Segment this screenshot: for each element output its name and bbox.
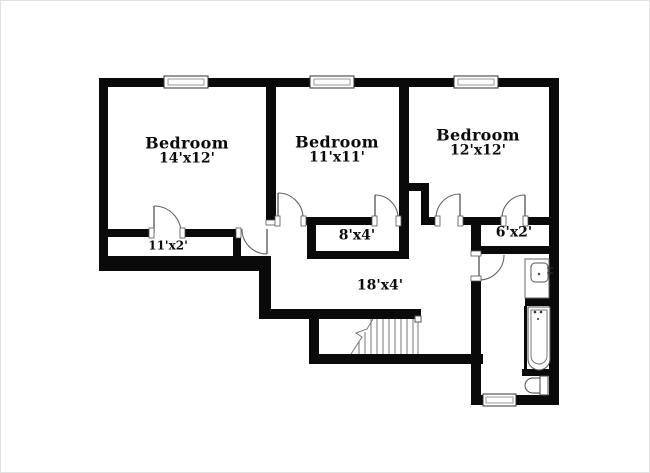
bedroom1-dims: 14'x12' (159, 152, 215, 167)
wall-bed1-bottom-a (99, 229, 154, 237)
floorplan-canvas: Bedroom 14'x12' Bedroom 11'x11' Bedroom … (0, 0, 650, 473)
wall-hall-bottom (259, 309, 421, 319)
wall-closet3-bottom (471, 246, 559, 254)
staircase (351, 316, 421, 354)
door-icon (375, 195, 398, 218)
wall-corridor-left (471, 279, 481, 405)
bathtub (528, 307, 550, 370)
hallway-dims: 18'x4' (357, 279, 403, 294)
wall-left (99, 78, 108, 271)
wall-tub-left (524, 306, 527, 369)
wall-tub-bottom-stub (522, 369, 549, 376)
closet1-dims: 11'x2' (148, 240, 188, 253)
door-icon (154, 206, 181, 233)
closet2-dims: 8'x4' (339, 229, 375, 244)
door-icon (242, 229, 267, 254)
stair-break-line (351, 319, 373, 354)
window-icon (310, 76, 354, 88)
wall-vanity-stub (525, 298, 549, 306)
window-icon (454, 76, 498, 88)
wall-bed1-bottom-b (182, 229, 241, 237)
toilet (525, 376, 548, 395)
window-icon (164, 76, 208, 88)
floorplan-drawing (1, 1, 650, 473)
closet3-dims: 6'x2' (496, 226, 532, 241)
door-icon (502, 195, 525, 218)
wall-closet2-bottom (307, 251, 409, 259)
door-icon (479, 255, 504, 280)
door-icon (436, 194, 460, 218)
wall-divider-bed1-bed2 (266, 86, 276, 225)
wall-bottom-left (99, 256, 271, 271)
bedroom2-dims: 11'x11' (309, 151, 365, 166)
bedroom3-dims: 12'x12' (450, 144, 506, 159)
sink (525, 259, 553, 298)
stair-newel (415, 316, 421, 322)
door-icon (278, 193, 303, 218)
wall-stair-bottom (309, 354, 483, 364)
window-icon (483, 394, 516, 406)
wall-divider-bed2-bed3 (399, 86, 409, 259)
